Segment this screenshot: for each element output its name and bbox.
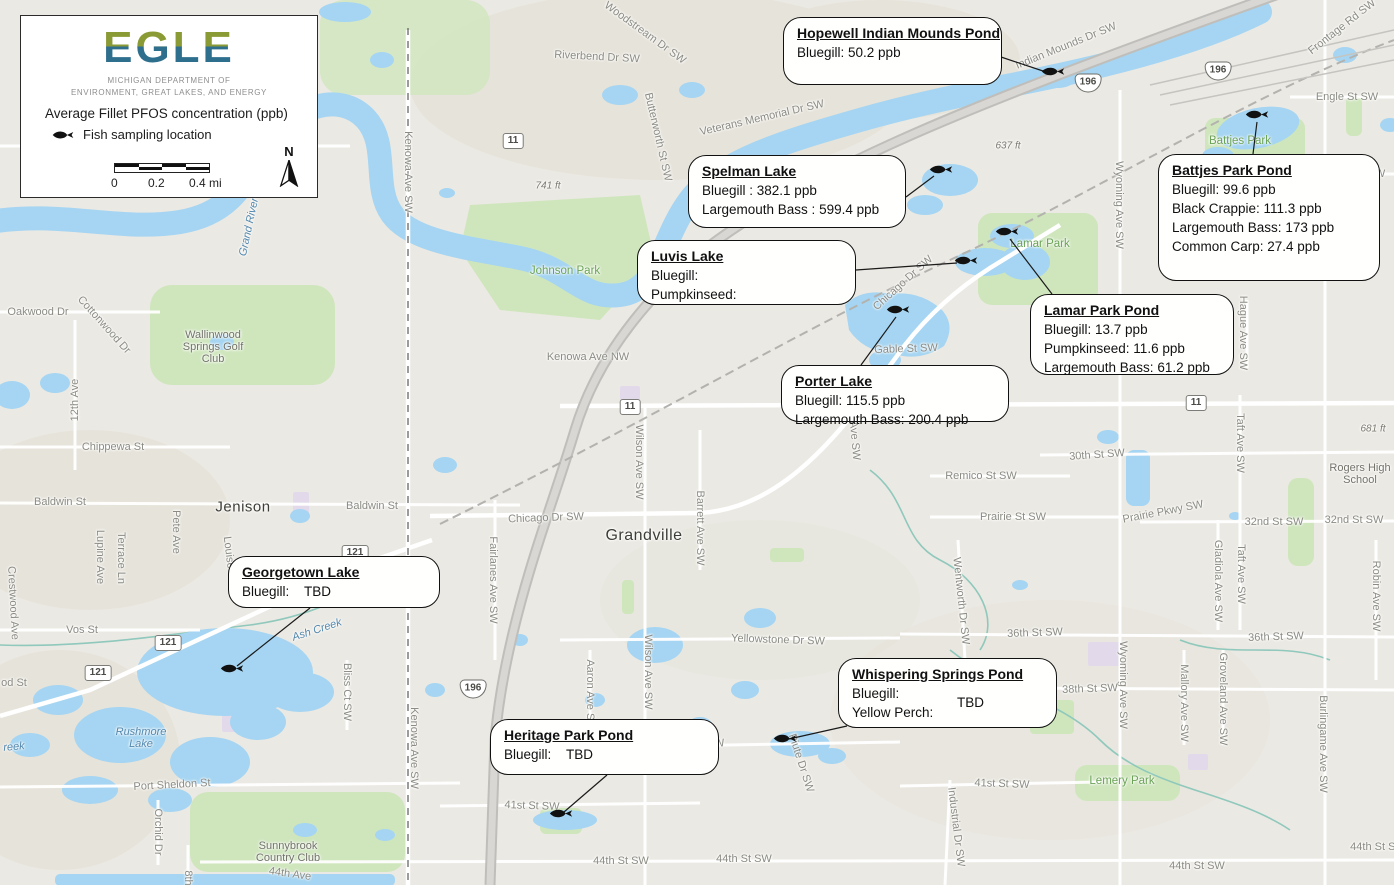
fish-sampling-location-icon [772,732,798,750]
callout-title: Hopewell Indian Mounds Pond [797,25,988,41]
callout-line: Bluegill: [852,684,1043,703]
callout-title: Heritage Park Pond [504,727,705,743]
north-label: N [275,144,303,159]
callout-title: Porter Lake [795,373,995,389]
fish-sampling-location-icon [1244,108,1270,126]
callout-porter: Porter LakeBluegill: 115.5 ppbLargemouth… [781,365,1009,422]
egle-logo: EGLE [21,24,317,75]
callout-spelman: Spelman LakeBluegill : 382.1 ppbLargemou… [688,155,906,228]
egle-logo-text: EGLE [103,24,235,70]
callout-line: Bluegill: 50.2 ppb [797,43,988,62]
callout-line: Black Crappie: 111.3 ppb [1172,199,1366,218]
fish-sampling-location-icon [1040,65,1066,83]
callout-title: Georgetown Lake [242,564,426,580]
callout-georgetown: Georgetown LakeBluegill: TBD [228,556,440,608]
scale-bar [114,163,210,173]
callout-hopewell: Hopewell Indian Mounds PondBluegill: 50.… [783,17,1002,85]
callout-title: Battjes Park Pond [1172,162,1366,178]
scale-label-0: 0 [111,176,118,190]
legend-dept-line1: MICHIGAN DEPARTMENT OF [21,75,317,87]
callout-heritage: Heritage Park PondBluegill: TBD [490,719,719,775]
callout-line: Bluegill: 115.5 ppb [795,391,995,410]
fish-legend-icon [51,129,75,141]
callout-line: Largemouth Bass: 200.4 ppb [795,410,995,429]
callout-line: Bluegill: [651,266,842,285]
callout-line: Largemouth Bass: 61.2 ppb [1044,358,1220,377]
callout-note: TBD [957,695,984,710]
north-arrow: N [275,144,303,192]
callout-battjes: Battjes Park PondBluegill: 99.6 ppbBlack… [1158,154,1380,281]
fish-sampling-location-icon [548,807,574,825]
fish-sampling-location-icon [994,225,1020,243]
callout-title: Luvis Lake [651,248,842,264]
legend-sampling-label: Fish sampling location [83,127,212,142]
callout-title: Lamar Park Pond [1044,302,1220,318]
callout-line: Bluegill: 99.6 ppb [1172,180,1366,199]
scale-label-max: 0.4 mi [189,176,222,190]
map-canvas: EGLE MICHIGAN DEPARTMENT OF ENVIRONMENT,… [0,0,1394,885]
callout-line: Largemouth Bass : 599.4 ppb [702,200,892,219]
callout-line: Pumpkinseed: 11.6 ppb [1044,339,1220,358]
callout-line: Bluegill : 382.1 ppb [702,181,892,200]
callout-lamar: Lamar Park PondBluegill: 13.7 ppbPumpkin… [1030,294,1234,375]
north-arrow-icon [278,159,300,187]
callout-line: Bluegill: TBD [242,582,426,601]
callout-line: Largemouth Bass: 173 ppb [1172,218,1366,237]
legend-box: EGLE MICHIGAN DEPARTMENT OF ENVIRONMENT,… [20,15,318,198]
fish-sampling-location-icon [953,254,979,272]
callout-line: Bluegill: 13.7 ppb [1044,320,1220,339]
fish-sampling-location-icon [928,163,954,181]
fish-sampling-location-icon [219,662,245,680]
callout-title: Whispering Springs Pond [852,666,1043,682]
fish-sampling-location-icon [885,303,911,321]
scale-label-mid: 0.2 [148,176,165,190]
legend-title: Average Fillet PFOS concentration (ppb) [45,106,317,121]
legend-dept-line2: ENVIRONMENT, GREAT LAKES, AND ENERGY [21,87,317,99]
callout-line: Pumpkinseed: [651,285,842,304]
callout-line: Bluegill: TBD [504,745,705,764]
callout-title: Spelman Lake [702,163,892,179]
callout-line: Yellow Perch: [852,703,1043,722]
callout-whispering: Whispering Springs PondBluegill:Yellow P… [838,658,1057,728]
callout-luvis: Luvis LakeBluegill:Pumpkinseed: [637,240,856,305]
callout-line: Common Carp: 27.4 ppb [1172,237,1366,256]
